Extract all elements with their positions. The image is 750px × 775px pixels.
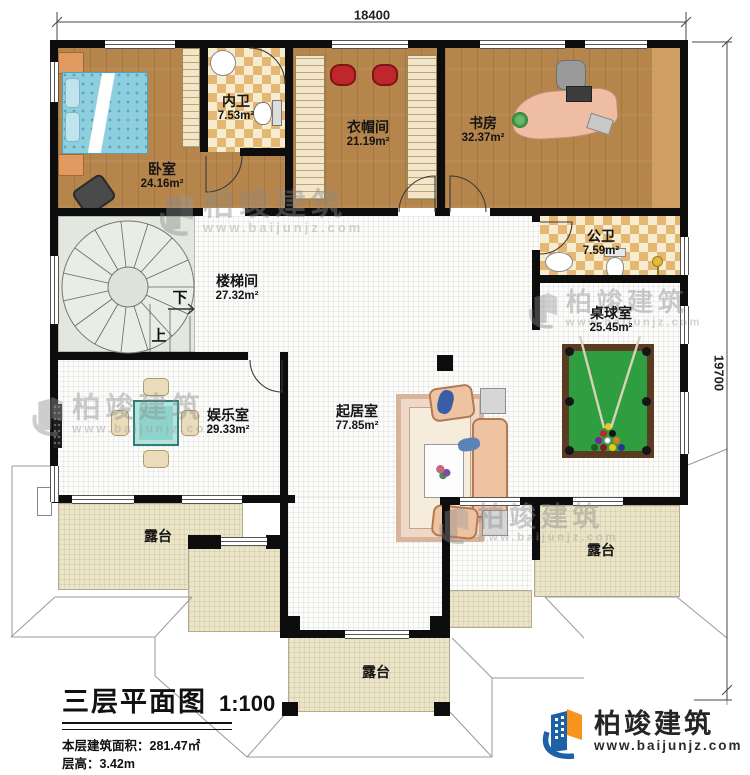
- window: [72, 495, 134, 504]
- wall: [188, 535, 221, 549]
- pool-ball: [613, 437, 620, 444]
- window: [221, 537, 267, 546]
- window: [50, 466, 59, 502]
- stool: [330, 64, 356, 86]
- window: [50, 256, 59, 324]
- table-flowers: [434, 462, 452, 480]
- wall: [490, 208, 688, 216]
- wall: [532, 250, 540, 275]
- bedroom-wardrobe: [182, 48, 200, 148]
- wall: [240, 148, 288, 156]
- chair: [143, 450, 169, 468]
- plan-scale: 1:100: [219, 691, 275, 717]
- chair: [143, 378, 169, 396]
- pool-pocket: [565, 397, 574, 406]
- window: [680, 392, 689, 454]
- sink: [210, 50, 236, 76]
- room-label-living: 起居室77.85m²: [336, 403, 379, 433]
- wall: [532, 283, 540, 330]
- window: [585, 40, 647, 49]
- wall: [50, 352, 248, 360]
- study-side-strip: [652, 48, 680, 208]
- floor-height-label: 层高：: [62, 757, 100, 771]
- pool-ball: [609, 430, 616, 437]
- floor-area-label: 本层建筑面积：: [62, 739, 150, 753]
- pool-ball: [605, 423, 612, 430]
- pool-pocket: [642, 347, 651, 356]
- room-label-public-bath: 公卫7.59m²: [583, 228, 619, 258]
- window: [480, 40, 565, 49]
- pool-ball: [591, 444, 598, 451]
- armchair: [430, 504, 479, 541]
- room-label-study: 书房32.37m²: [462, 115, 505, 145]
- title-underline: [62, 722, 232, 730]
- pool-pocket: [642, 397, 651, 406]
- wall: [435, 208, 450, 216]
- dimension-height: 19700: [712, 355, 727, 391]
- terrace-left-b: [188, 540, 288, 632]
- floor-area-value: 281.47㎡: [150, 739, 201, 753]
- window: [50, 62, 59, 102]
- wall: [200, 48, 208, 152]
- toilet-tank: [272, 100, 282, 126]
- floor-plan-canvas: 柏竣建筑www.baijunjz.com 柏竣建筑www.baijunjz.co…: [0, 0, 750, 775]
- pool-pocket: [565, 347, 574, 356]
- floor-height-value: 3.42m: [100, 757, 135, 771]
- sliding-door-window: [345, 630, 409, 639]
- stair-up-label: 上: [151, 325, 166, 346]
- terrace-label-right: 露台: [587, 540, 615, 560]
- pool-ball: [595, 437, 602, 444]
- stool: [372, 64, 398, 86]
- terrace-label-left: 露台: [144, 526, 172, 546]
- stairwell-floor: [58, 216, 195, 352]
- window: [680, 237, 689, 275]
- game-table: [133, 400, 179, 446]
- brand-logo-icon: [538, 704, 586, 760]
- side-table: [482, 510, 508, 536]
- corridor-floor: [200, 152, 285, 208]
- window: [332, 40, 408, 49]
- title-block: 三层平面图 1:100 本层建筑面积：281.47㎡ 层高：3.42m: [62, 680, 275, 773]
- wall: [245, 208, 398, 216]
- chair: [111, 410, 129, 436]
- window: [680, 306, 689, 344]
- window: [460, 497, 520, 506]
- brand-url: www.baijunjz.com: [594, 738, 743, 754]
- pool-ball: [600, 430, 607, 437]
- pool-pocket: [642, 446, 651, 455]
- window: [573, 497, 623, 506]
- room-label-bedroom: 卧室24.16m²: [141, 161, 184, 191]
- side-table: [480, 388, 506, 414]
- terrace-label-bottom: 露台: [362, 662, 390, 682]
- wall: [50, 208, 203, 216]
- stair-down-label: 下: [172, 287, 187, 308]
- sink: [545, 252, 573, 272]
- terrace-right-strip: [442, 590, 532, 628]
- bed-blanket-fold: [88, 73, 122, 153]
- room-label-cloakroom: 衣帽间21.19m²: [347, 119, 390, 149]
- cloakroom-wardrobe-right: [407, 55, 437, 200]
- window: [182, 495, 242, 504]
- room-label-billiards: 桌球室25.45m²: [590, 305, 633, 335]
- pool-ball: [618, 444, 625, 451]
- room-label-stairwell: 楼梯间27.32m²: [216, 273, 259, 303]
- wall: [532, 505, 540, 560]
- wall: [437, 48, 445, 208]
- wall: [280, 352, 288, 503]
- nightstand: [58, 154, 84, 176]
- pool-ball: [604, 437, 611, 444]
- column-post: [282, 702, 298, 716]
- nightstand: [58, 52, 84, 74]
- wall: [285, 48, 293, 208]
- pillow: [65, 78, 80, 108]
- dimension-width: 18400: [354, 8, 390, 23]
- window: [105, 40, 175, 49]
- radiator: [53, 404, 62, 448]
- pillow: [65, 112, 80, 142]
- room-label-master-bath: 内卫7.53m²: [218, 93, 254, 123]
- pool-ball: [600, 444, 607, 451]
- monitor: [566, 86, 592, 102]
- brand-logo: 柏竣建筑 www.baijunjz.com: [538, 704, 743, 760]
- room-label-rec-room: 娱乐室29.33m²: [207, 407, 250, 437]
- plant: [512, 112, 528, 128]
- column-post: [280, 616, 300, 638]
- plan-title: 三层平面图: [62, 680, 207, 719]
- toilet-bowl: [253, 102, 272, 125]
- column-post: [437, 355, 453, 371]
- pool-ball: [609, 444, 616, 451]
- pool-table: [562, 344, 654, 458]
- cloakroom-wardrobe-left: [295, 55, 325, 200]
- pool-pocket: [565, 446, 574, 455]
- brand-name: 柏竣建筑: [594, 710, 743, 738]
- wall: [532, 216, 540, 222]
- column-post: [430, 616, 450, 638]
- chair: [181, 410, 199, 436]
- wall: [532, 275, 688, 283]
- column-post: [434, 702, 450, 716]
